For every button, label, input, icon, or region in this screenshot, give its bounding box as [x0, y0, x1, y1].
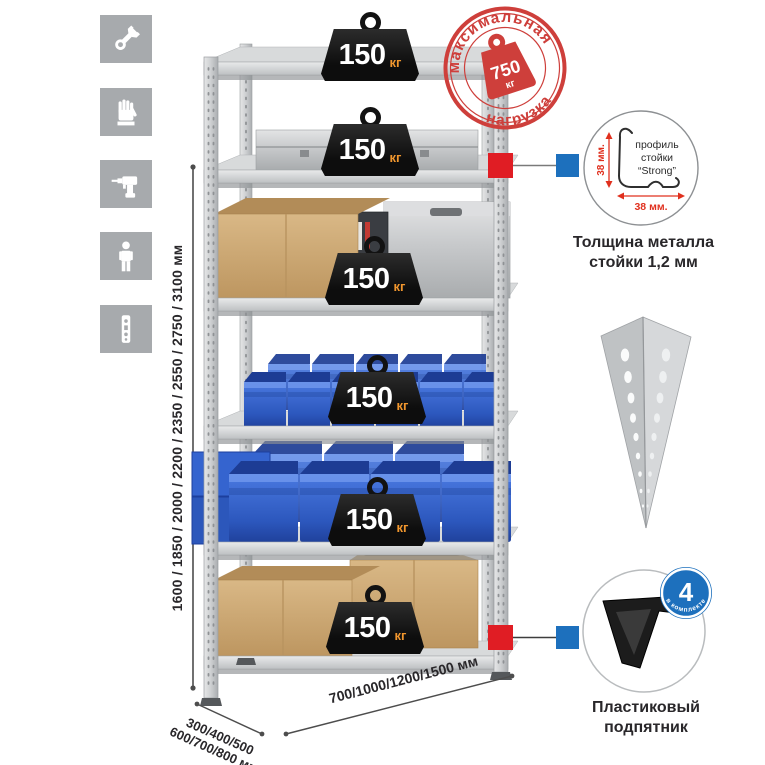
badge-unit: кг — [393, 279, 405, 294]
front-left-post — [204, 57, 218, 698]
profile-caption: Толщина металла стойки 1,2 мм — [556, 233, 731, 274]
callout-top-blue-marker — [556, 154, 579, 177]
badge-value: 150 — [346, 504, 393, 537]
height-dimension-line — [190, 164, 195, 690]
profile-label-line3: “Strong” — [638, 165, 676, 177]
badge-unit: кг — [396, 398, 408, 413]
callout-bottom-blue-marker — [556, 626, 579, 649]
shelf-load-badge-6: 150кг — [325, 585, 425, 654]
foot-detail-circle: 4 в комплекте — [583, 568, 712, 693]
angle-post-image — [601, 317, 691, 528]
profile-detail-circle: 38 мм. 38 мм. профиль стойки “Strong” — [584, 111, 698, 225]
badge-unit: кг — [389, 55, 401, 70]
back-left-post — [240, 44, 252, 658]
profile-label-line2: стойки — [641, 152, 673, 164]
badge-value: 150 — [339, 134, 386, 167]
profile-dim-vertical-label: 38 мм. — [596, 144, 607, 176]
shelf-load-badge-1: 150кг — [320, 12, 420, 81]
shelf-load-badge-5: 150кг — [327, 477, 427, 546]
badge-value: 150 — [339, 39, 386, 72]
count-badge-number: 4 — [679, 577, 694, 607]
max-load-stamp: максимальная нагрузка 750 кг — [430, 0, 581, 145]
badge-unit: кг — [389, 150, 401, 165]
profile-dim-horizontal-label: 38 мм. — [634, 201, 667, 213]
profile-caption-line2: стойки 1,2 мм — [556, 253, 731, 273]
case-handle — [430, 208, 462, 216]
foot-caption-line1: Пластиковый — [560, 698, 732, 718]
height-dimension-label: 1600 / 1850 / 2000 / 2200 / 2350 / 2550 … — [169, 163, 187, 693]
profile-label-line1: профиль — [635, 139, 679, 151]
badge-value: 150 — [346, 382, 393, 415]
callout-top — [488, 153, 579, 178]
badge-value: 150 — [344, 612, 391, 645]
shelf-load-badge-2: 150кг — [320, 107, 420, 176]
infographic-canvas: максимальная нагрузка 750 кг — [0, 0, 765, 765]
badge-unit: кг — [396, 520, 408, 535]
foot-caption: Пластиковый подпятник — [560, 698, 732, 739]
callout-top-red-marker — [488, 153, 513, 178]
count-badge: 4 в комплекте — [661, 568, 712, 619]
foot-caption-line2: подпятник — [560, 718, 732, 738]
badge-unit: кг — [394, 628, 406, 643]
badge-value: 150 — [343, 263, 390, 296]
shelf-load-badge-3: 150кг — [324, 236, 424, 305]
profile-label: профиль стойки “Strong” — [635, 139, 679, 177]
shelf-load-badge-4: 150кг — [327, 355, 427, 424]
profile-caption-line1: Толщина металла — [556, 233, 731, 253]
